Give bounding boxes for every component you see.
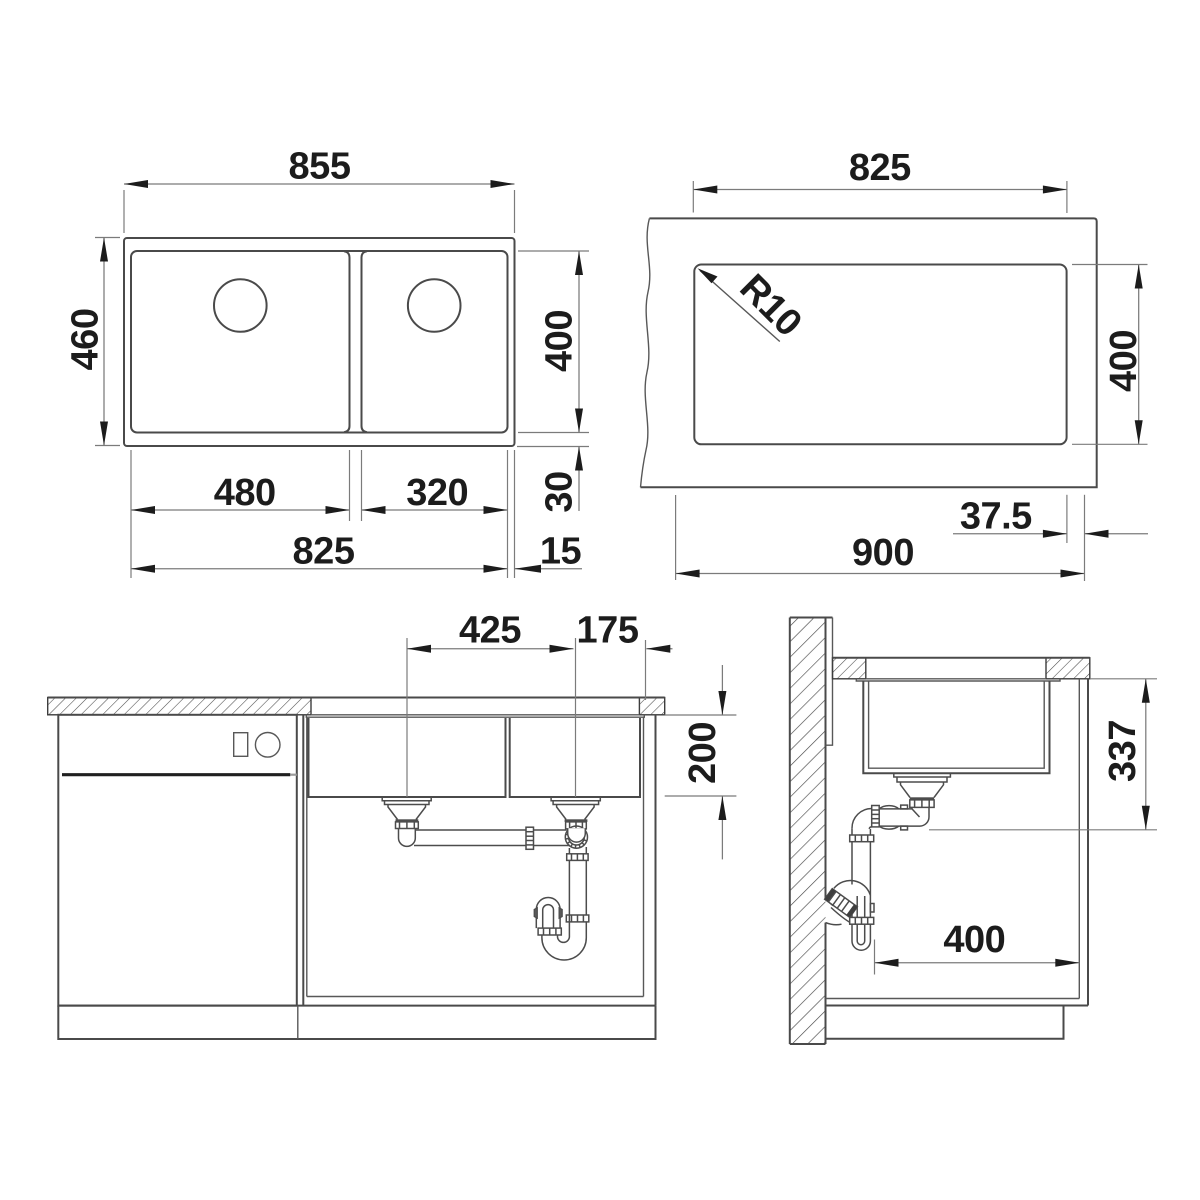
- svg-text:825: 825: [849, 147, 911, 189]
- svg-text:37.5: 37.5: [960, 496, 1032, 538]
- svg-text:400: 400: [1103, 330, 1145, 392]
- svg-text:855: 855: [289, 146, 351, 188]
- svg-text:900: 900: [852, 532, 914, 574]
- svg-text:30: 30: [539, 471, 581, 512]
- svg-text:320: 320: [406, 472, 468, 514]
- svg-text:15: 15: [540, 531, 582, 573]
- svg-text:400: 400: [943, 919, 1005, 961]
- svg-text:337: 337: [1102, 720, 1144, 782]
- svg-text:460: 460: [65, 309, 107, 371]
- svg-text:425: 425: [459, 610, 521, 652]
- svg-text:825: 825: [293, 531, 355, 573]
- svg-text:175: 175: [577, 610, 639, 652]
- svg-text:480: 480: [214, 472, 276, 514]
- svg-text:200: 200: [682, 722, 724, 784]
- svg-text:400: 400: [539, 310, 581, 372]
